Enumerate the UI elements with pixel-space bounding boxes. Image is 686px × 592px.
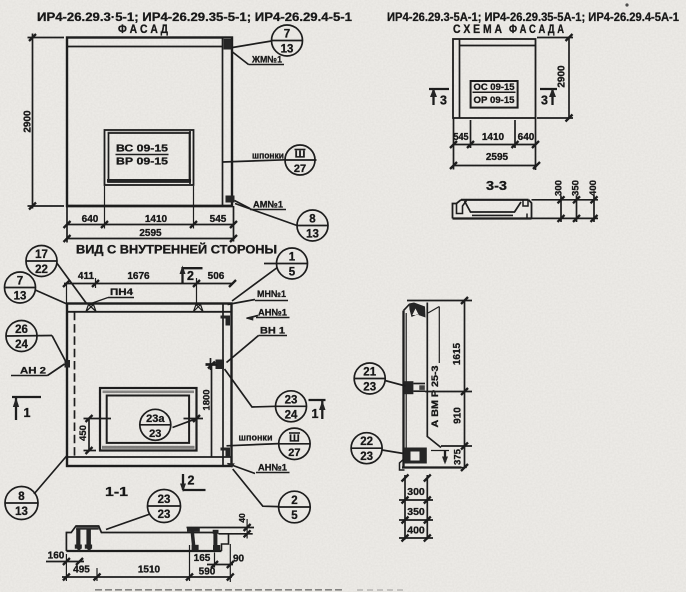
svg-text:1800: 1800 <box>202 389 213 410</box>
svg-text:3: 3 <box>541 94 548 108</box>
svg-text:1-1: 1-1 <box>105 484 128 499</box>
svg-text:23: 23 <box>360 451 373 463</box>
svg-text:22: 22 <box>35 264 48 276</box>
svg-text:23: 23 <box>158 509 171 521</box>
svg-text:ИР4-26.29.3-5А-1; ИР4-26.29.35: ИР4-26.29.3-5А-1; ИР4-26.29.35-5А-1; ИР4… <box>387 10 679 24</box>
svg-text:7: 7 <box>17 276 23 288</box>
svg-text:13: 13 <box>15 506 28 518</box>
svg-text:ВР 09-15: ВР 09-15 <box>116 156 168 168</box>
svg-text:1676: 1676 <box>127 271 150 282</box>
svg-text:506: 506 <box>208 271 225 282</box>
svg-text:24: 24 <box>15 339 28 351</box>
svg-text:5: 5 <box>289 267 296 279</box>
svg-text:640: 640 <box>82 214 99 225</box>
svg-text:А ВМ Р 25-3: А ВМ Р 25-3 <box>430 366 441 428</box>
svg-text:Ф А С А Д: Ф А С А Д <box>118 24 168 36</box>
svg-text:375: 375 <box>453 448 464 465</box>
svg-text:ПН4: ПН4 <box>110 287 134 298</box>
svg-text:300: 300 <box>407 486 425 498</box>
svg-text:13: 13 <box>281 44 294 56</box>
svg-text:300: 300 <box>554 180 565 196</box>
svg-text:27: 27 <box>288 447 300 459</box>
svg-text:411: 411 <box>78 271 95 282</box>
svg-text:23а: 23а <box>146 413 165 425</box>
svg-text:400: 400 <box>588 180 599 196</box>
svg-text:Ф А С А Д А: Ф А С А Д А <box>509 24 564 36</box>
svg-text:2595: 2595 <box>139 228 162 239</box>
svg-text:МН№1: МН№1 <box>257 289 287 300</box>
svg-text:1: 1 <box>312 407 319 421</box>
svg-text:22: 22 <box>360 436 373 448</box>
svg-text:7: 7 <box>284 29 290 41</box>
svg-text:640: 640 <box>518 132 535 143</box>
svg-text:23: 23 <box>158 494 171 506</box>
svg-text:350: 350 <box>571 180 582 196</box>
svg-text:450: 450 <box>78 425 89 441</box>
svg-text:40: 40 <box>237 513 247 523</box>
svg-text:1410: 1410 <box>482 132 505 143</box>
svg-text:1: 1 <box>24 406 31 420</box>
svg-text:ВИД С ВНУТРЕННЕЙ СТОРОНЫ: ВИД С ВНУТРЕННЕЙ СТОРОНЫ <box>76 244 277 257</box>
svg-text:27: 27 <box>294 163 306 175</box>
svg-text:1410: 1410 <box>145 214 168 225</box>
svg-text:495: 495 <box>73 565 90 576</box>
svg-text:13: 13 <box>306 229 319 241</box>
svg-text:2595: 2595 <box>486 152 509 163</box>
svg-text:3-3: 3-3 <box>486 179 507 193</box>
svg-text:1615: 1615 <box>452 342 463 365</box>
svg-text:165: 165 <box>194 553 211 564</box>
svg-text:Ш: Ш <box>289 432 300 444</box>
svg-text:400: 400 <box>407 525 425 537</box>
svg-text:2: 2 <box>187 269 194 283</box>
svg-text:590: 590 <box>199 567 216 578</box>
svg-text:2900: 2900 <box>23 110 34 133</box>
svg-text:545: 545 <box>454 132 469 143</box>
svg-text:1510: 1510 <box>138 565 161 576</box>
svg-text:545: 545 <box>210 214 227 225</box>
svg-text:С Х Е М А: С Х Е М А <box>453 24 502 36</box>
svg-text:ВС 09-15: ВС 09-15 <box>116 143 168 155</box>
svg-text:2900: 2900 <box>557 65 568 88</box>
svg-text:8: 8 <box>309 214 316 226</box>
svg-text:350: 350 <box>407 506 425 518</box>
svg-text:160: 160 <box>48 551 65 562</box>
svg-text:8: 8 <box>18 491 25 503</box>
svg-text:1: 1 <box>289 252 296 264</box>
svg-text:ИР4-26.29.3·5-1; ИР4-26.29.35-: ИР4-26.29.3·5-1; ИР4-26.29.35-5-1; ИР4-2… <box>37 10 352 24</box>
svg-text:23: 23 <box>285 394 298 406</box>
svg-text:26: 26 <box>15 324 28 336</box>
svg-text:21: 21 <box>363 367 376 379</box>
svg-text:Ш: Ш <box>295 149 306 161</box>
svg-text:910: 910 <box>453 407 464 424</box>
svg-text:2: 2 <box>291 495 297 507</box>
svg-text:24: 24 <box>285 409 298 421</box>
svg-text:2: 2 <box>188 474 195 488</box>
svg-text:90: 90 <box>233 554 245 565</box>
svg-text:23: 23 <box>363 382 376 394</box>
svg-text:5: 5 <box>291 510 298 522</box>
svg-text:ОС 09-15: ОС 09-15 <box>474 82 515 92</box>
svg-text:3: 3 <box>440 94 447 108</box>
svg-text:13: 13 <box>14 291 27 303</box>
svg-text:шпонки: шпонки <box>239 433 273 444</box>
svg-text:17: 17 <box>35 249 48 261</box>
svg-text:ОР 09-15: ОР 09-15 <box>474 95 515 105</box>
svg-text:23: 23 <box>149 428 161 440</box>
